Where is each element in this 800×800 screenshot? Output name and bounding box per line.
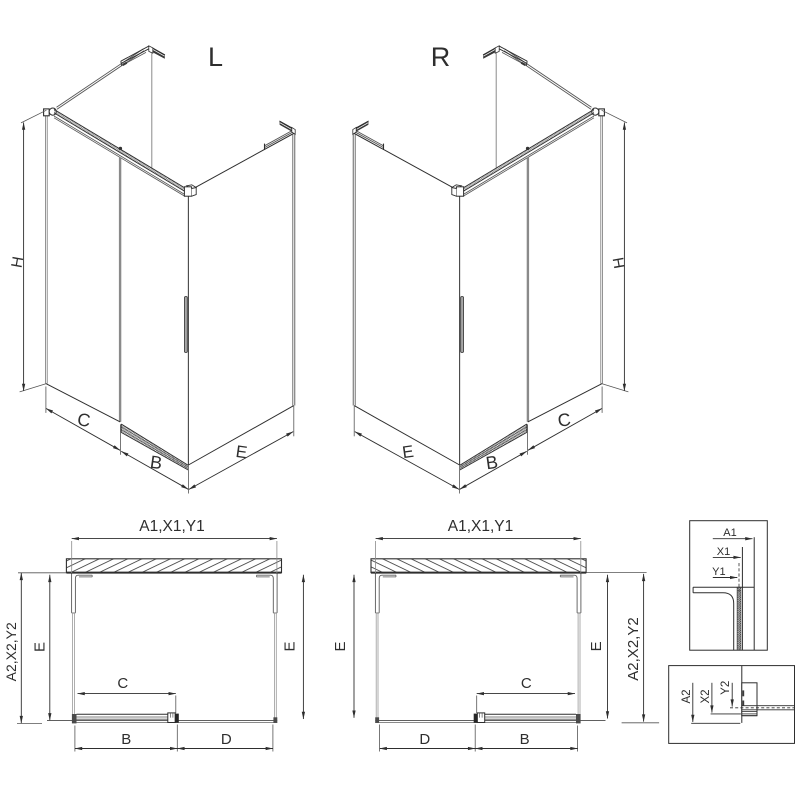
- svg-text:X1: X1: [717, 546, 730, 558]
- svg-text:D: D: [221, 731, 232, 748]
- svg-text:A2,X2,Y2: A2,X2,Y2: [3, 622, 19, 681]
- svg-text:Y1: Y1: [712, 566, 725, 578]
- svg-text:C: C: [556, 409, 572, 431]
- svg-text:B: B: [520, 731, 530, 748]
- svg-text:E: E: [332, 641, 349, 651]
- svg-text:L: L: [208, 42, 223, 72]
- svg-text:A1: A1: [723, 527, 736, 539]
- svg-text:C: C: [521, 675, 532, 692]
- svg-text:E: E: [32, 642, 49, 652]
- svg-text:E: E: [588, 641, 605, 651]
- svg-text:A2: A2: [681, 689, 693, 703]
- svg-text:B: B: [121, 731, 131, 748]
- svg-text:C: C: [117, 675, 128, 692]
- svg-text:X2: X2: [700, 689, 712, 703]
- svg-text:C: C: [76, 409, 92, 431]
- svg-text:A1,X1,Y1: A1,X1,Y1: [448, 518, 514, 535]
- svg-text:A1,X1,Y1: A1,X1,Y1: [139, 518, 205, 535]
- svg-text:E: E: [282, 641, 299, 651]
- svg-text:Y2: Y2: [720, 681, 732, 695]
- svg-text:D: D: [419, 731, 430, 748]
- svg-text:R: R: [431, 42, 451, 72]
- svg-text:A2,X2,Y2: A2,X2,Y2: [625, 617, 642, 680]
